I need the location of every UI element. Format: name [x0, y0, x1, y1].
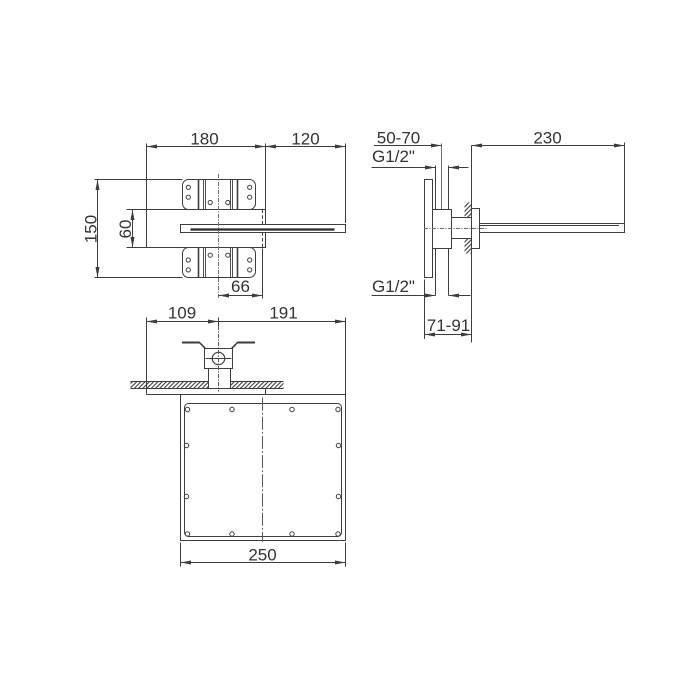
svg-text:60: 60	[116, 220, 135, 239]
svg-text:G1/2": G1/2"	[372, 277, 415, 296]
svg-text:250: 250	[248, 546, 276, 565]
svg-text:71-91: 71-91	[427, 316, 470, 335]
svg-text:230: 230	[533, 129, 561, 148]
svg-text:50-70: 50-70	[377, 129, 420, 148]
svg-text:G1/2": G1/2"	[372, 147, 415, 166]
svg-text:66: 66	[231, 277, 250, 296]
svg-text:180: 180	[190, 130, 218, 149]
svg-text:109: 109	[168, 304, 196, 323]
svg-text:150: 150	[82, 215, 101, 243]
svg-text:191: 191	[269, 304, 297, 323]
svg-text:120: 120	[291, 130, 319, 149]
